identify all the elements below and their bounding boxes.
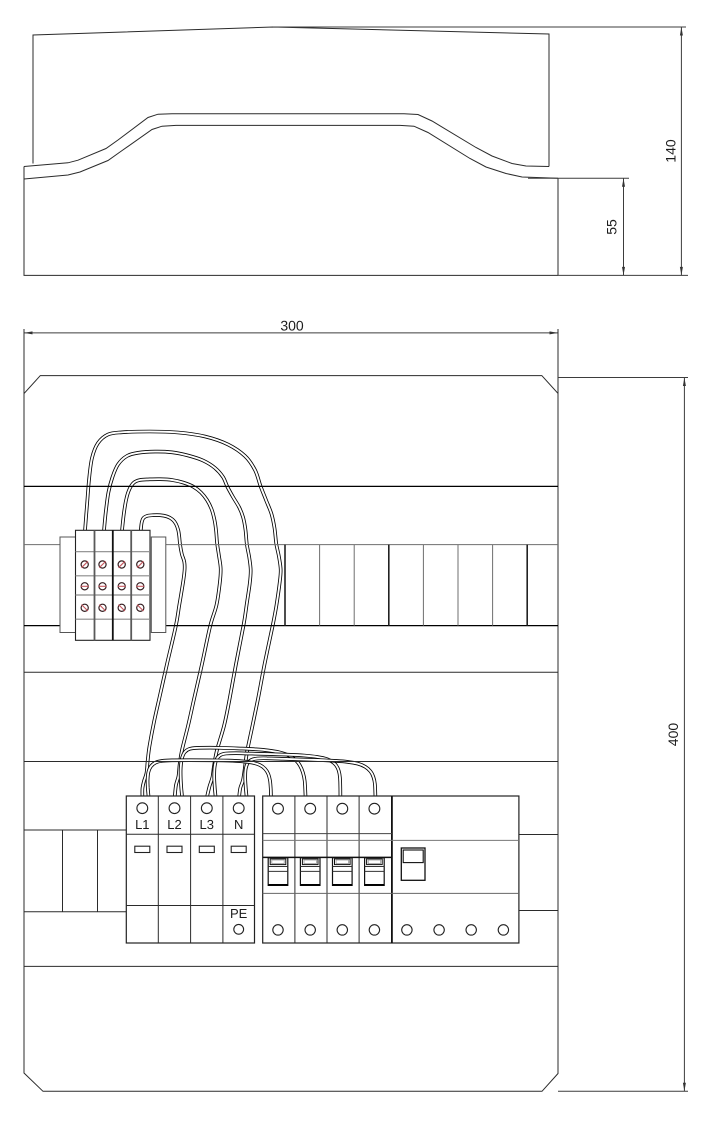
svg-text:400: 400: [665, 723, 681, 747]
svg-text:140: 140: [663, 139, 679, 163]
svg-text:PE: PE: [230, 906, 248, 921]
svg-text:L3: L3: [200, 817, 214, 832]
svg-text:300: 300: [280, 317, 304, 333]
svg-text:55: 55: [604, 219, 620, 235]
svg-text:L1: L1: [135, 817, 149, 832]
svg-text:N: N: [234, 817, 243, 832]
svg-text:L2: L2: [167, 817, 181, 832]
